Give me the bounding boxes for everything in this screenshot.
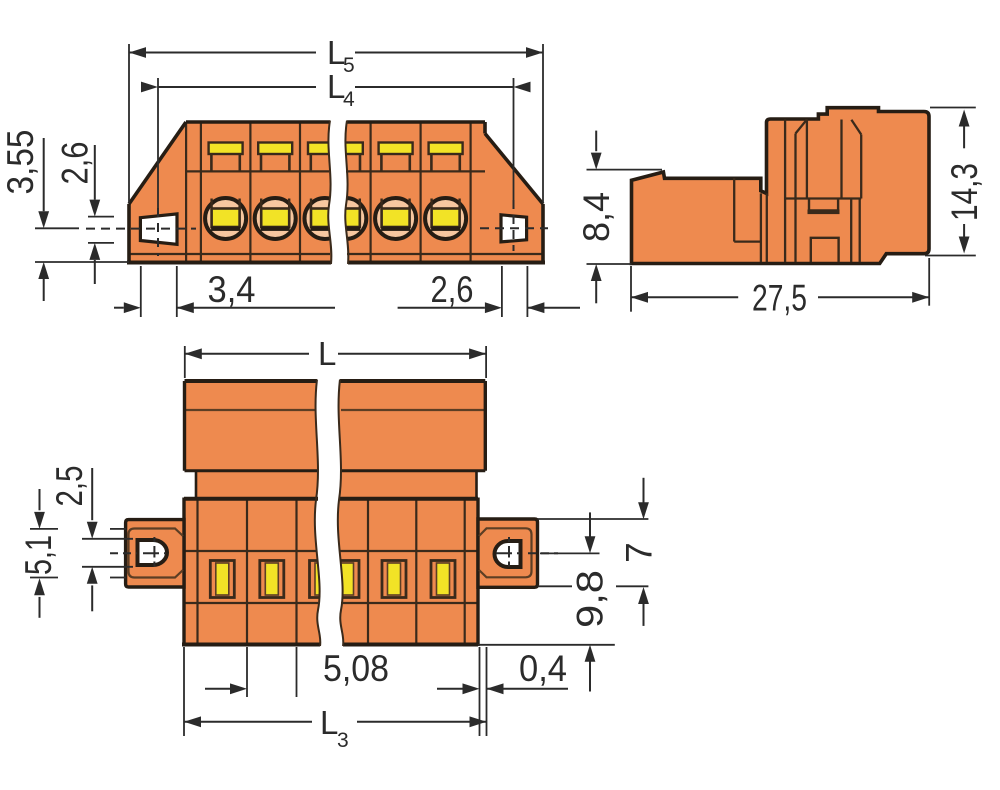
svg-text:L: L <box>320 704 338 741</box>
svg-text:2,5: 2,5 <box>49 466 90 507</box>
svg-text:8,4: 8,4 <box>576 192 617 242</box>
svg-text:27,5: 27,5 <box>752 278 807 319</box>
svg-text:3,55: 3,55 <box>0 130 41 195</box>
svg-text:2,6: 2,6 <box>431 269 474 310</box>
svg-text:L: L <box>318 335 336 372</box>
svg-text:3: 3 <box>337 729 349 752</box>
svg-text:5,1: 5,1 <box>18 535 59 575</box>
svg-text:14,3: 14,3 <box>944 163 985 221</box>
svg-text:5,08: 5,08 <box>323 648 389 689</box>
svg-text:2,6: 2,6 <box>55 142 96 185</box>
svg-text:7: 7 <box>619 542 660 563</box>
svg-text:9,8: 9,8 <box>570 570 611 628</box>
svg-text:3,4: 3,4 <box>208 269 256 310</box>
svg-text:0,4: 0,4 <box>519 648 567 689</box>
svg-text:4: 4 <box>343 88 355 111</box>
